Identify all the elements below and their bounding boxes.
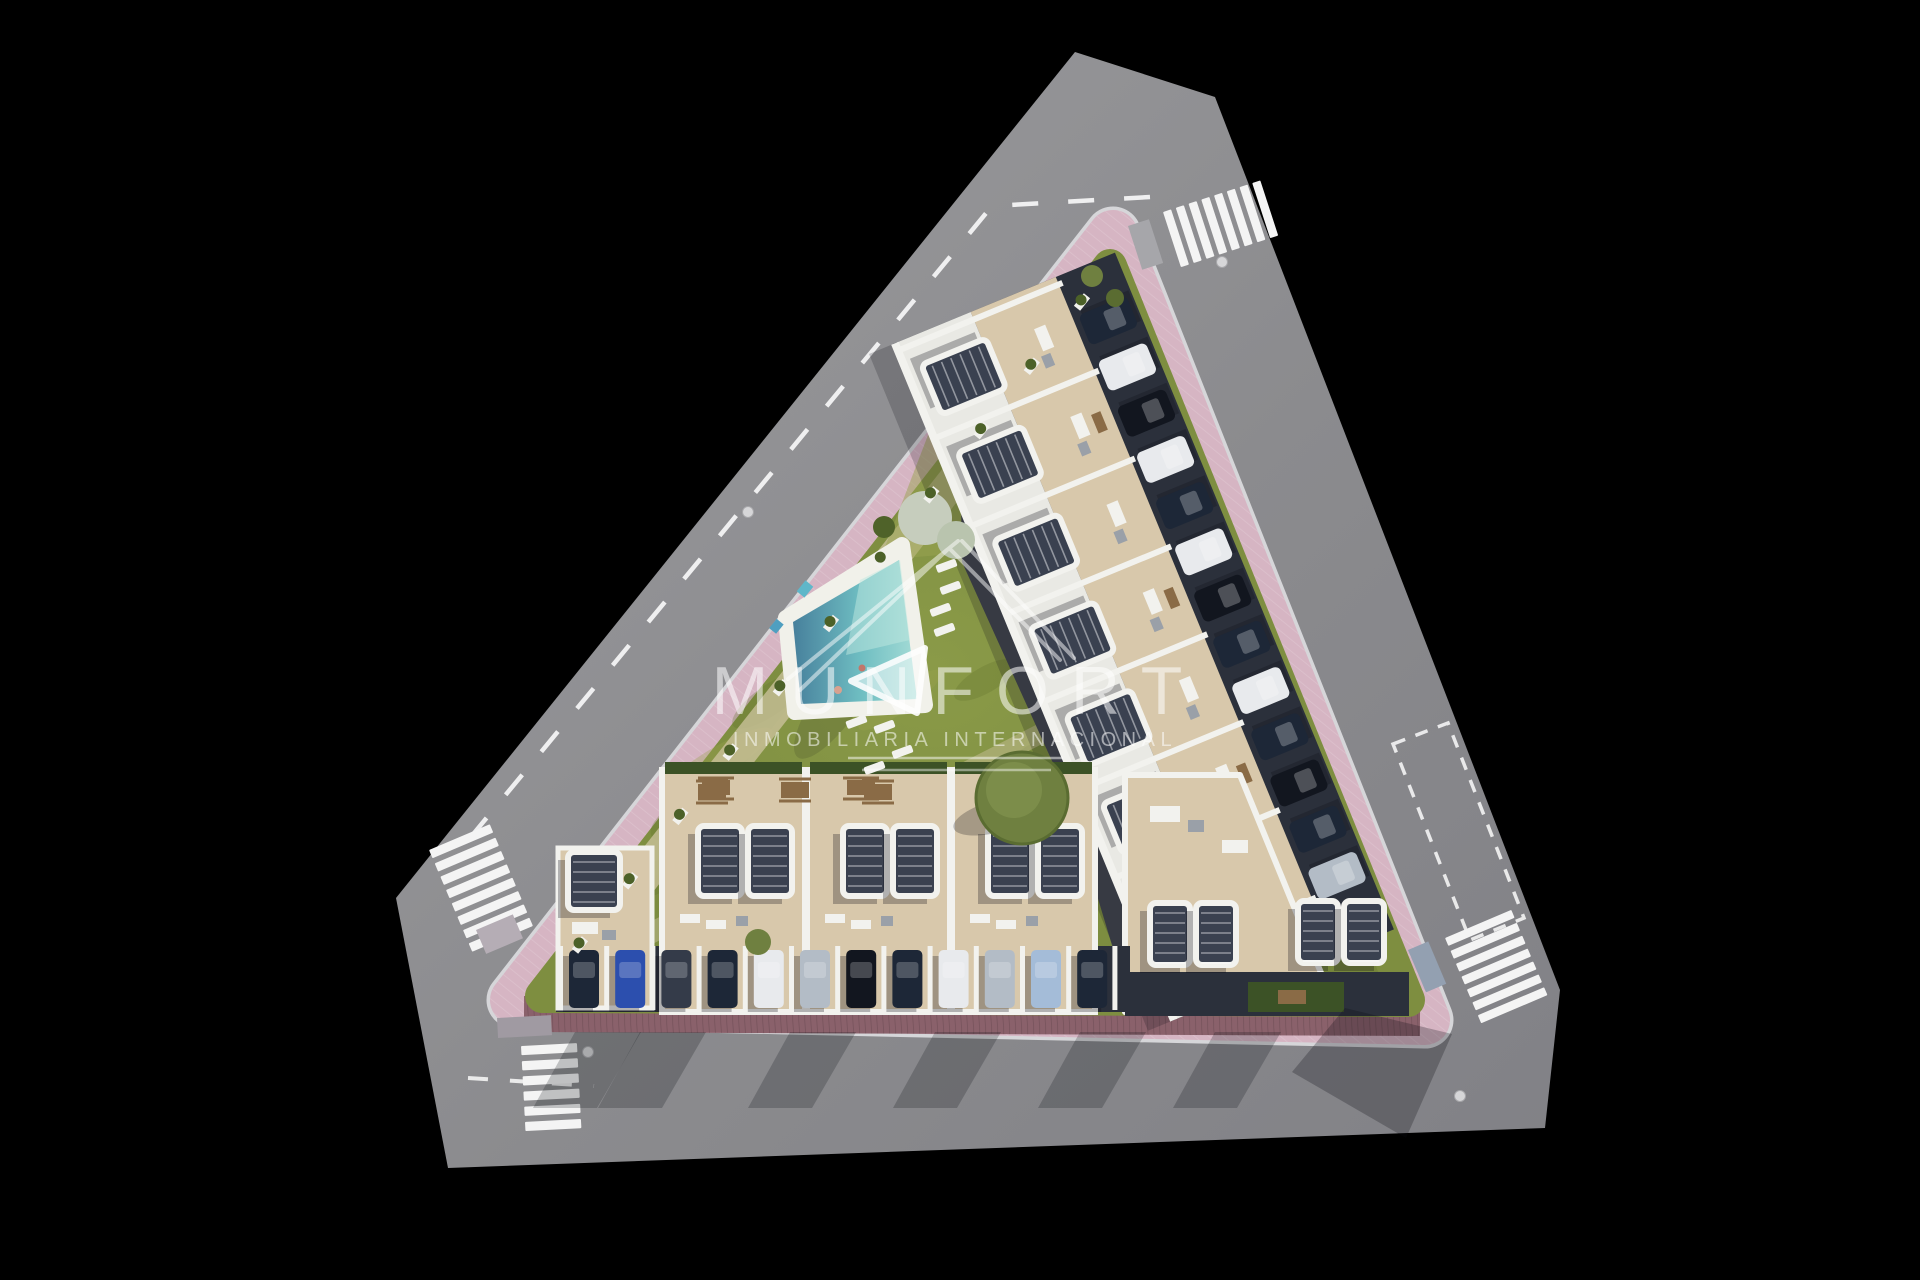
car bbox=[939, 950, 969, 1008]
car bbox=[661, 950, 691, 1008]
shrub bbox=[1081, 265, 1103, 287]
garage-bay-divider bbox=[1112, 946, 1117, 1010]
terrace-sofa bbox=[1150, 806, 1180, 822]
garage-bay-divider bbox=[604, 946, 609, 1010]
shrub bbox=[745, 929, 771, 955]
site-plan-render: MUNFORT INMOBILIARIA INTERNACIONAL bbox=[0, 0, 1920, 1280]
corner-unit-pergola bbox=[558, 852, 620, 918]
terrace-sofa bbox=[572, 922, 598, 934]
garage-bay-divider bbox=[743, 946, 748, 1010]
sun-lounger bbox=[851, 920, 871, 929]
terrace-table bbox=[736, 916, 748, 926]
terrace-table bbox=[1188, 820, 1204, 832]
sun-lounger bbox=[825, 914, 845, 923]
garage-bay-divider bbox=[835, 946, 840, 1010]
car-windshield bbox=[943, 962, 965, 978]
garage-bay-divider bbox=[650, 946, 655, 1010]
tactile-pad bbox=[497, 1015, 552, 1038]
car-windshield bbox=[989, 962, 1011, 978]
terrace-sofa bbox=[1222, 840, 1248, 853]
garage-bay-divider bbox=[1020, 946, 1025, 1010]
manhole-cover bbox=[1217, 257, 1228, 268]
sun-lounger bbox=[996, 920, 1016, 929]
car bbox=[1077, 950, 1107, 1008]
manhole-cover bbox=[1455, 1091, 1466, 1102]
car bbox=[892, 950, 922, 1008]
car-windshield bbox=[804, 962, 826, 978]
garage-bay-divider bbox=[881, 946, 886, 1010]
car-windshield bbox=[1035, 962, 1057, 978]
car bbox=[1031, 950, 1061, 1008]
garage-bay-divider bbox=[974, 946, 979, 1010]
picnic-table bbox=[781, 782, 809, 798]
garden-hedge bbox=[665, 762, 802, 774]
picnic-table bbox=[864, 784, 892, 800]
terrace-table bbox=[602, 930, 616, 940]
car-windshield bbox=[712, 962, 734, 978]
car bbox=[569, 950, 599, 1008]
bottom-garage-row bbox=[558, 946, 1117, 1012]
garage-bay-divider bbox=[789, 946, 794, 1010]
car-windshield bbox=[573, 962, 595, 978]
sun-lounger bbox=[706, 920, 726, 929]
car bbox=[800, 950, 830, 1008]
car-windshield bbox=[896, 962, 918, 978]
picnic-table bbox=[1278, 990, 1306, 1004]
sun-lounger bbox=[680, 914, 700, 923]
sun-lounger bbox=[970, 914, 990, 923]
car bbox=[708, 950, 738, 1008]
watermark-brand-text: MUNFORT bbox=[712, 653, 1205, 729]
garage-bay-divider bbox=[1066, 946, 1071, 1010]
car-windshield bbox=[850, 962, 872, 978]
car bbox=[846, 950, 876, 1008]
car bbox=[985, 950, 1015, 1008]
car-windshield bbox=[619, 962, 641, 978]
car-windshield bbox=[758, 962, 780, 978]
terrace-table bbox=[881, 916, 893, 926]
picnic-table bbox=[698, 784, 726, 800]
aerial-render-canvas: MUNFORT INMOBILIARIA INTERNACIONAL bbox=[0, 0, 1920, 1280]
shrub bbox=[1106, 289, 1124, 307]
shrub bbox=[873, 516, 895, 538]
car bbox=[754, 950, 784, 1008]
terrace-table bbox=[1026, 916, 1038, 926]
manhole-cover bbox=[743, 507, 754, 518]
garage-bay-divider bbox=[558, 946, 563, 1010]
garage-bay-divider bbox=[928, 946, 933, 1010]
car-windshield bbox=[1081, 962, 1103, 978]
car-windshield bbox=[665, 962, 687, 978]
watermark-tagline-text: INMOBILIARIA INTERNACIONAL bbox=[733, 729, 1177, 751]
garage-bay-divider bbox=[697, 946, 702, 1010]
car bbox=[615, 950, 645, 1008]
